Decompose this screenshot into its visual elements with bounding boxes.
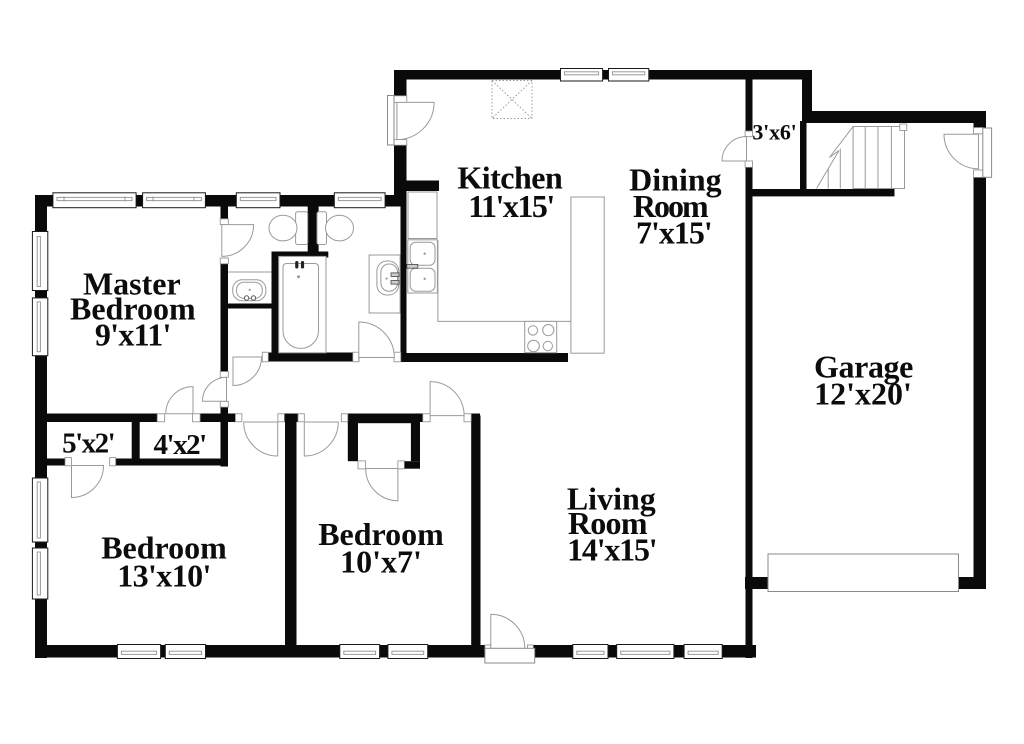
svg-text:5'x2': 5'x2': [62, 428, 114, 460]
svg-text:7'x15': 7'x15': [636, 215, 712, 251]
svg-text:3'x6': 3'x6': [752, 120, 796, 145]
svg-text:12'x20': 12'x20': [814, 376, 912, 412]
svg-text:4'x2': 4'x2': [154, 429, 206, 461]
svg-text:13'x10': 13'x10': [117, 558, 211, 594]
svg-text:14'x15': 14'x15': [567, 532, 656, 568]
svg-text:9'x11': 9'x11': [95, 317, 171, 353]
svg-text:11'x15': 11'x15': [468, 188, 554, 224]
svg-text:10'x7': 10'x7': [340, 544, 422, 580]
